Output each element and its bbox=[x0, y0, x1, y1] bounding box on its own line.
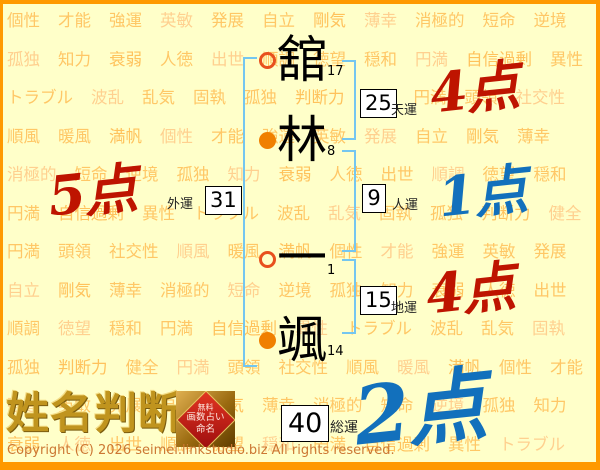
bg-word: 知力 bbox=[58, 41, 91, 80]
heaven-fortune-bracket bbox=[342, 60, 356, 140]
bg-word: 満帆 bbox=[109, 118, 142, 157]
bg-word: 人徳 bbox=[160, 41, 193, 80]
bg-word: 円満 bbox=[160, 310, 193, 349]
frame-left bbox=[0, 0, 3, 470]
bg-word: 波乱 bbox=[277, 195, 310, 234]
bg-word: 才能 bbox=[211, 118, 244, 157]
bg-word: 波乱 bbox=[91, 79, 124, 118]
badge-text: 無料 画数占い 命名 bbox=[186, 403, 224, 435]
bg-word: 剛気 bbox=[466, 118, 499, 157]
name-character-1: 舘 bbox=[277, 34, 327, 86]
bg-word: 孤独 bbox=[483, 387, 516, 426]
total-fortune-value: 40 bbox=[281, 405, 329, 442]
open-circle-marker bbox=[259, 251, 276, 268]
bg-word: 薄幸 bbox=[517, 118, 550, 157]
bg-word: 乱気 bbox=[142, 79, 175, 118]
bg-word: 発展 bbox=[534, 233, 567, 272]
seimei-handan-result-page: 個性才能強運英敏発展自立剛気薄幸消極的短命逆境孤独知力衰弱人徳出世順調徳望穏和円… bbox=[0, 0, 600, 470]
bg-word: 社交性 bbox=[516, 79, 566, 118]
earth-fortune-bracket bbox=[342, 259, 356, 334]
bg-word: 薄幸 bbox=[364, 2, 397, 41]
bg-word: 薄幸 bbox=[109, 272, 142, 311]
bg-word: 自立 bbox=[7, 272, 40, 311]
name-character-4: 颯 bbox=[277, 314, 327, 366]
stroke-count-2: 8 bbox=[327, 144, 335, 159]
bg-word: 消極的 bbox=[160, 272, 210, 311]
open-circle-marker bbox=[259, 52, 276, 69]
bg-word: 衰弱 bbox=[109, 41, 142, 80]
bg-word: 穏和 bbox=[364, 41, 397, 80]
person-fortune-label: 人運 bbox=[392, 194, 418, 213]
badge-line-3: 命名 bbox=[186, 424, 224, 435]
badge-line-2: 画数占い bbox=[186, 412, 224, 423]
bg-word: 穏和 bbox=[109, 310, 142, 349]
bg-word: 発展 bbox=[211, 2, 244, 41]
earth-fortune-label: 地運 bbox=[391, 297, 417, 316]
bg-word: 円満 bbox=[177, 349, 210, 388]
bg-word: 消極的 bbox=[415, 2, 465, 41]
bg-word: 孤独 bbox=[7, 41, 40, 80]
bg-word: 知力 bbox=[534, 387, 567, 426]
bg-word: 短命 bbox=[483, 2, 516, 41]
outer-fortune-value: 31 bbox=[205, 186, 242, 215]
bg-word: トラブル bbox=[7, 79, 73, 118]
frame-right bbox=[596, 0, 600, 470]
bg-word: トラブル bbox=[499, 426, 565, 465]
bg-word: 個性 bbox=[160, 118, 193, 157]
bg-word: 才能 bbox=[550, 349, 583, 388]
bg-word: 社交性 bbox=[109, 233, 159, 272]
outer-fortune-label: 外運 bbox=[167, 193, 193, 212]
name-character-3: 一 bbox=[277, 232, 327, 284]
bg-word: 異性 bbox=[550, 41, 583, 80]
bg-word: 才能 bbox=[58, 2, 91, 41]
bg-word: 暖風 bbox=[58, 118, 91, 157]
bg-word: 円満 bbox=[7, 233, 40, 272]
stroke-count-1: 17 bbox=[327, 64, 344, 79]
bg-word: 孤独 bbox=[7, 349, 40, 388]
bg-word: 円満 bbox=[7, 195, 40, 234]
bg-word: 逆境 bbox=[534, 2, 567, 41]
bg-word: 強運 bbox=[109, 2, 142, 41]
site-logo[interactable]: 姓名判断 bbox=[6, 389, 182, 441]
bg-word: 順調 bbox=[7, 310, 40, 349]
free-naming-badge[interactable]: 無料 画数占い 命名 bbox=[176, 391, 235, 447]
copyright-text: Copyright (C) 2026 seimei.linkstudio.biz… bbox=[7, 443, 395, 458]
bg-word: 出世 bbox=[534, 272, 567, 311]
outer-fortune-bracket bbox=[243, 57, 257, 367]
bg-word: 順風 bbox=[7, 118, 40, 157]
frame-bottom bbox=[0, 462, 600, 470]
stroke-count-3: 1 bbox=[327, 263, 335, 278]
bg-word: 順風 bbox=[177, 233, 210, 272]
bg-word: 健全 bbox=[549, 195, 582, 234]
bg-word: 固執 bbox=[193, 79, 226, 118]
stroke-count-4: 14 bbox=[327, 344, 344, 359]
bg-word: 才能 bbox=[381, 233, 414, 272]
bg-word: 出世 bbox=[211, 41, 244, 80]
heaven-fortune-score: 4点 bbox=[427, 58, 520, 121]
bg-word: 英敏 bbox=[160, 2, 193, 41]
person-fortune-value: 9 bbox=[362, 184, 386, 213]
earth-fortune-score: 4点 bbox=[423, 259, 516, 322]
bg-word: 個性 bbox=[499, 349, 532, 388]
name-character-2: 林 bbox=[277, 114, 327, 166]
bg-word: 健全 bbox=[126, 349, 159, 388]
badge-line-1: 無料 bbox=[186, 403, 224, 413]
heaven-fortune-label: 天運 bbox=[391, 99, 417, 118]
bg-word: 頭領 bbox=[58, 233, 91, 272]
person-fortune-score: 1点 bbox=[435, 162, 528, 225]
bg-word: 穏和 bbox=[534, 156, 567, 195]
bg-word: 判断力 bbox=[58, 349, 108, 388]
frame-top bbox=[0, 0, 600, 4]
bg-word: 固執 bbox=[532, 310, 565, 349]
bg-word: 発展 bbox=[364, 118, 397, 157]
bg-word: 剛気 bbox=[58, 272, 91, 311]
bg-word: 徳望 bbox=[58, 310, 91, 349]
person-fortune-bracket bbox=[342, 150, 356, 252]
filled-circle-marker bbox=[259, 132, 276, 149]
filled-circle-marker bbox=[259, 332, 276, 349]
outer-fortune-score: 5点 bbox=[45, 161, 138, 224]
bg-word: 個性 bbox=[7, 2, 40, 41]
